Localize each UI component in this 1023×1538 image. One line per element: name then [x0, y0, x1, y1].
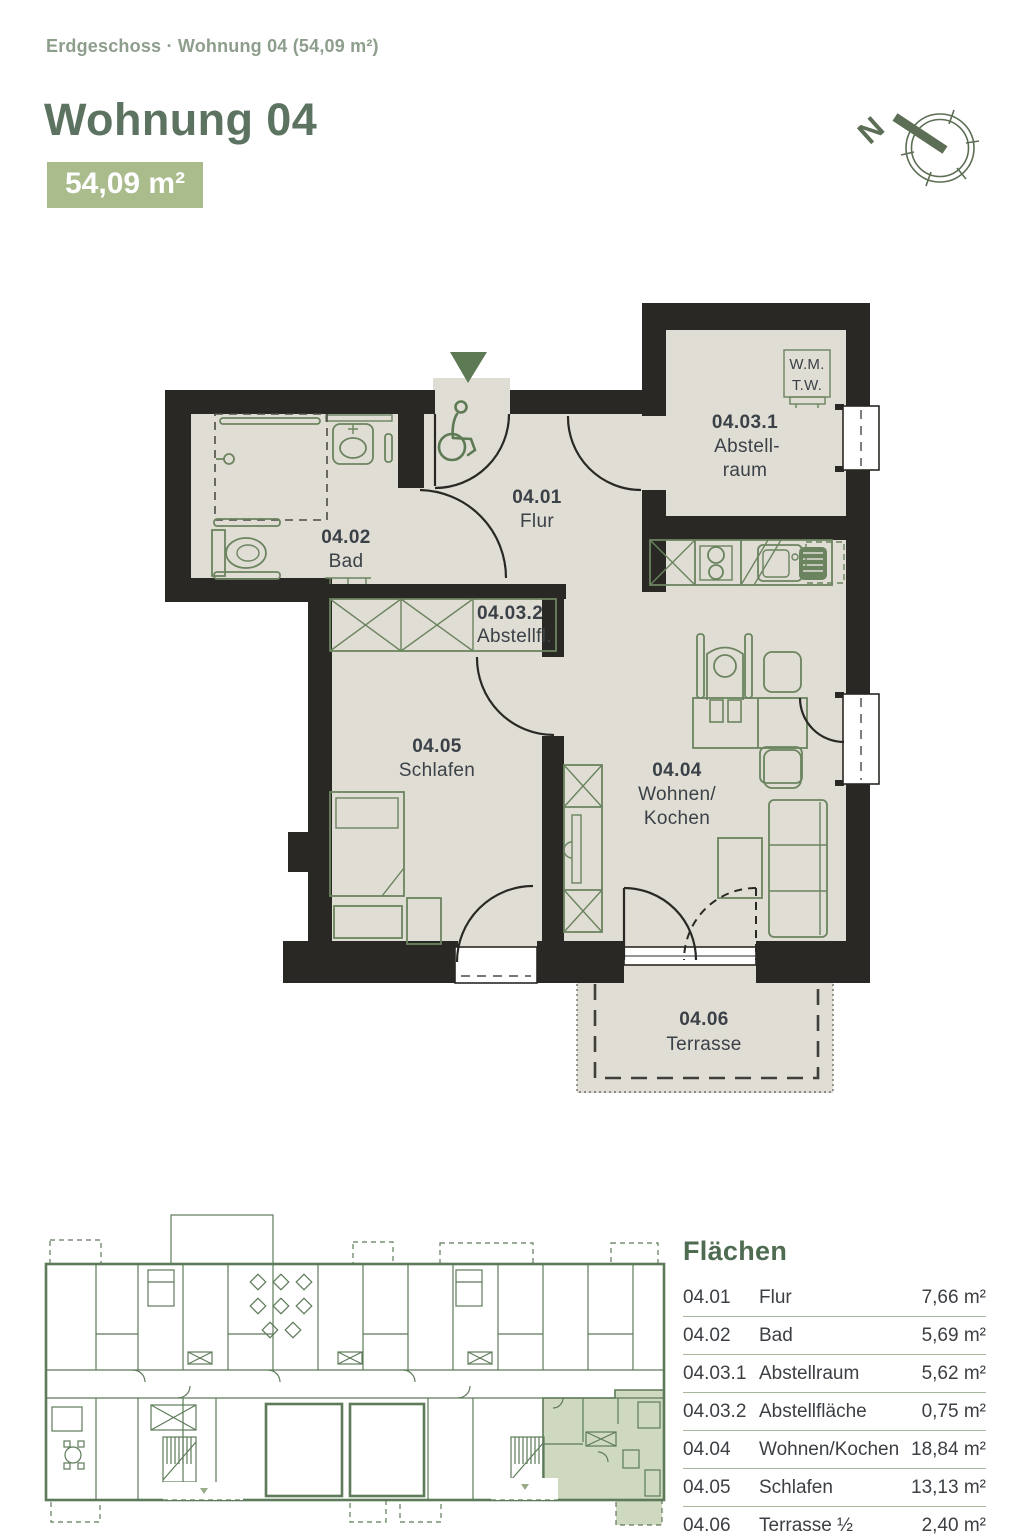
breadcrumb: Erdgeschoss · Wohnung 04 (54,09 m²)	[46, 36, 379, 57]
table-row: 04.04 Wohnen/Kochen 18,84 m²	[683, 1431, 986, 1469]
area-badge: 54,09 m²	[47, 162, 203, 208]
room-label-bad-id: 04.02	[321, 527, 371, 548]
row-name: Abstellfläche	[759, 1401, 922, 1423]
areas-table: Flächen 04.01 Flur 7,66 m² 04.02 Bad 5,6…	[683, 1236, 986, 1538]
room-label-abstellflaeche-id: 04.03.2	[477, 603, 543, 624]
room-label-terrasse-id: 04.06	[679, 1009, 729, 1030]
room-label-abstellraum-name1: Abstell-	[714, 436, 780, 457]
building-overview-plan	[38, 1212, 678, 1538]
row-value: 5,62 m²	[922, 1363, 986, 1385]
row-value: 7,66 m²	[922, 1287, 986, 1309]
table-row: 04.06 Terrasse ½ 2,40 m²	[683, 1507, 986, 1538]
room-label-flur-name: Flur	[520, 511, 554, 532]
row-value: 5,69 m²	[922, 1325, 986, 1347]
row-name: Abstellraum	[759, 1363, 922, 1385]
table-row: 04.03.2 Abstellfläche 0,75 m²	[683, 1393, 986, 1431]
table-row: 04.02 Bad 5,69 m²	[683, 1317, 986, 1355]
row-id: 04.04	[683, 1439, 759, 1461]
room-label-schlafen-id: 04.05	[412, 736, 462, 757]
room-label-wohnen-name1: Wohnen/	[638, 784, 716, 805]
room-label-flur-id: 04.01	[512, 487, 562, 508]
room-label-abstellflaeche-name: Abstellfl.	[477, 626, 552, 647]
room-label-schlafen-name: Schlafen	[399, 760, 475, 781]
row-name: Bad	[759, 1325, 922, 1347]
room-label-abstellraum-id: 04.03.1	[712, 412, 778, 433]
north-compass-icon: N	[845, 86, 995, 191]
highlighted-unit-terrace	[616, 1500, 662, 1525]
row-value: 0,75 m²	[922, 1401, 986, 1423]
table-row: 04.05 Schlafen 13,13 m²	[683, 1469, 986, 1507]
row-id: 04.03.1	[683, 1363, 759, 1385]
main-floorplan: W.M. T.W.	[150, 295, 890, 1105]
room-label-wohnen-id: 04.04	[652, 760, 702, 781]
row-name: Terrasse ½	[759, 1515, 922, 1537]
row-name: Schlafen	[759, 1477, 911, 1499]
row-value: 2,40 m²	[922, 1515, 986, 1537]
row-id: 04.06	[683, 1515, 759, 1537]
row-id: 04.03.2	[683, 1401, 759, 1423]
room-label-terrasse-name: Terrasse	[666, 1034, 741, 1055]
row-value: 13,13 m²	[911, 1477, 986, 1499]
page-title: Wohnung 04	[44, 94, 317, 146]
table-row: 04.03.1 Abstellraum 5,62 m²	[683, 1355, 986, 1393]
north-label: N	[851, 110, 891, 151]
row-name: Wohnen/Kochen	[759, 1439, 911, 1461]
row-id: 04.01	[683, 1287, 759, 1309]
row-id: 04.05	[683, 1477, 759, 1499]
room-label-bad-name: Bad	[329, 551, 364, 572]
appliance-label-2: T.W.	[792, 377, 822, 394]
room-label-abstellraum-name2: raum	[723, 460, 768, 481]
room-label-wohnen-name2: Kochen	[644, 808, 710, 829]
overview-cores	[151, 1405, 558, 1500]
floorplan-page: Erdgeschoss · Wohnung 04 (54,09 m²) Wohn…	[0, 0, 1023, 1538]
table-row: 04.01 Flur 7,66 m²	[683, 1279, 986, 1317]
row-name: Flur	[759, 1287, 922, 1309]
row-value: 18,84 m²	[911, 1439, 986, 1461]
areas-table-title: Flächen	[683, 1236, 986, 1267]
row-id: 04.02	[683, 1325, 759, 1347]
highlighted-unit	[543, 1390, 664, 1500]
appliance-label-1: W.M.	[789, 356, 824, 373]
